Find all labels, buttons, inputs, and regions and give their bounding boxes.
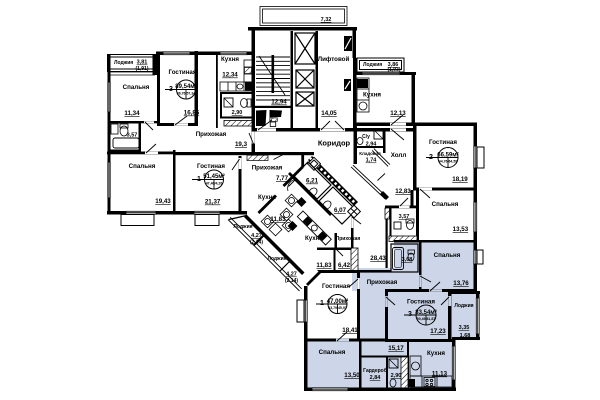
svg-text:43,79/45,97: 43,79/45,97 [328, 306, 347, 310]
svg-text:Прихожая: Прихожая [336, 236, 361, 242]
svg-text:3,35: 3,35 [459, 325, 470, 331]
svg-text:1,68: 1,68 [460, 333, 471, 339]
svg-text:18,19: 18,19 [452, 176, 468, 183]
svg-text:12,83: 12,83 [395, 188, 411, 195]
svg-text:Лоджия: Лоджия [454, 303, 473, 309]
svg-text:18,41: 18,41 [342, 327, 358, 334]
svg-text:47,46/4,26: 47,46/4,26 [206, 182, 223, 186]
svg-text:Лоджия: Лоджия [233, 224, 252, 230]
svg-text:Кухня: Кухня [427, 350, 445, 357]
svg-text:2,90: 2,90 [232, 110, 243, 116]
svg-text:13,53: 13,53 [453, 226, 469, 233]
svg-text:3,57: 3,57 [399, 214, 410, 220]
svg-text:13,50: 13,50 [344, 372, 360, 379]
svg-text:Кладовая: Кладовая [359, 151, 381, 156]
svg-text:12,13: 12,13 [390, 110, 406, 117]
svg-text:28,43: 28,43 [370, 255, 386, 262]
svg-text:4,27: 4,27 [286, 272, 297, 278]
svg-text:2,90: 2,90 [391, 373, 402, 379]
svg-text:36,76/57,34: 36,76/57,34 [177, 92, 196, 96]
svg-text:13,76: 13,76 [453, 280, 469, 287]
svg-text:14,05: 14,05 [321, 110, 337, 117]
svg-text:(1,91): (1,91) [135, 66, 148, 72]
svg-text:Лоджия: Лоджия [114, 60, 133, 66]
svg-text:11,34: 11,34 [124, 110, 140, 117]
svg-text:Лоджия: Лоджия [363, 62, 382, 68]
svg-text:Кухня: Кухня [363, 92, 381, 99]
svg-text:Гостиная: Гостиная [407, 299, 435, 306]
svg-text:(2,14): (2,14) [250, 240, 263, 246]
svg-text:3,57: 3,57 [127, 133, 138, 139]
svg-text:(2,14): (2,14) [285, 278, 298, 284]
svg-text:12,94: 12,94 [271, 99, 287, 106]
svg-text:11,83: 11,83 [316, 262, 332, 269]
svg-text:12,34: 12,34 [222, 72, 238, 79]
svg-text:6,07: 6,07 [334, 207, 347, 214]
svg-text:11,13: 11,13 [432, 371, 448, 378]
svg-text:Кухня: Кухня [258, 194, 276, 201]
svg-text:Прихожая: Прихожая [252, 165, 283, 172]
svg-text:19,43: 19,43 [155, 198, 171, 205]
svg-text:3,68: 3,68 [402, 257, 413, 263]
svg-text:Гостиная: Гостиная [429, 139, 457, 146]
svg-text:1,74: 1,74 [366, 158, 378, 164]
svg-text:Гостиная: Гостиная [197, 163, 225, 170]
svg-text:2,94: 2,94 [366, 142, 378, 148]
svg-text:11,83: 11,83 [270, 216, 286, 223]
svg-text:21,37: 21,37 [205, 199, 221, 206]
svg-text:Спальня: Спальня [123, 84, 150, 91]
svg-text:15,17: 15,17 [388, 345, 404, 352]
svg-text:89,54м²: 89,54м² [175, 83, 196, 90]
svg-text:Спальня: Спальня [432, 201, 459, 208]
svg-text:Гардероб: Гардероб [363, 367, 387, 374]
svg-text:44,76/64,59: 44,76/64,59 [439, 160, 458, 164]
svg-text:Коридор: Коридор [318, 139, 351, 148]
svg-text:50,49/81,87: 50,49/81,87 [417, 317, 436, 321]
svg-text:С/у: С/у [362, 134, 370, 140]
svg-text:Кухня: Кухня [221, 56, 239, 63]
svg-text:3: 3 [408, 311, 412, 318]
svg-text:Лоджия: Лоджия [267, 256, 286, 262]
svg-text:Спальня: Спальня [129, 163, 156, 170]
svg-text:Спальня: Спальня [319, 349, 346, 356]
svg-text:19,3: 19,3 [235, 141, 248, 148]
svg-text:6,21: 6,21 [306, 178, 319, 185]
svg-text:6,42: 6,42 [338, 262, 351, 269]
svg-text:Гостиная: Гостиная [322, 283, 350, 290]
svg-text:Холл: Холл [391, 152, 407, 159]
svg-text:7,32: 7,32 [321, 17, 332, 23]
svg-text:Прихожая: Прихожая [367, 279, 398, 286]
svg-text:1: 1 [320, 300, 324, 307]
svg-text:16,85: 16,85 [184, 110, 200, 117]
svg-text:Спальня: Спальня [434, 252, 461, 259]
svg-text:3,81: 3,81 [137, 60, 148, 66]
svg-text:Прихожая: Прихожая [196, 131, 227, 138]
svg-text:Гостиная: Гостиная [169, 69, 197, 76]
svg-text:Лифтовой: Лифтовой [318, 56, 350, 63]
svg-text:17,23: 17,23 [430, 328, 446, 335]
svg-text:4,27: 4,27 [251, 233, 262, 239]
svg-text:51,45м²: 51,45м² [203, 173, 224, 180]
svg-text:2,84: 2,84 [370, 375, 382, 381]
svg-text:Кухня: Кухня [305, 235, 323, 242]
